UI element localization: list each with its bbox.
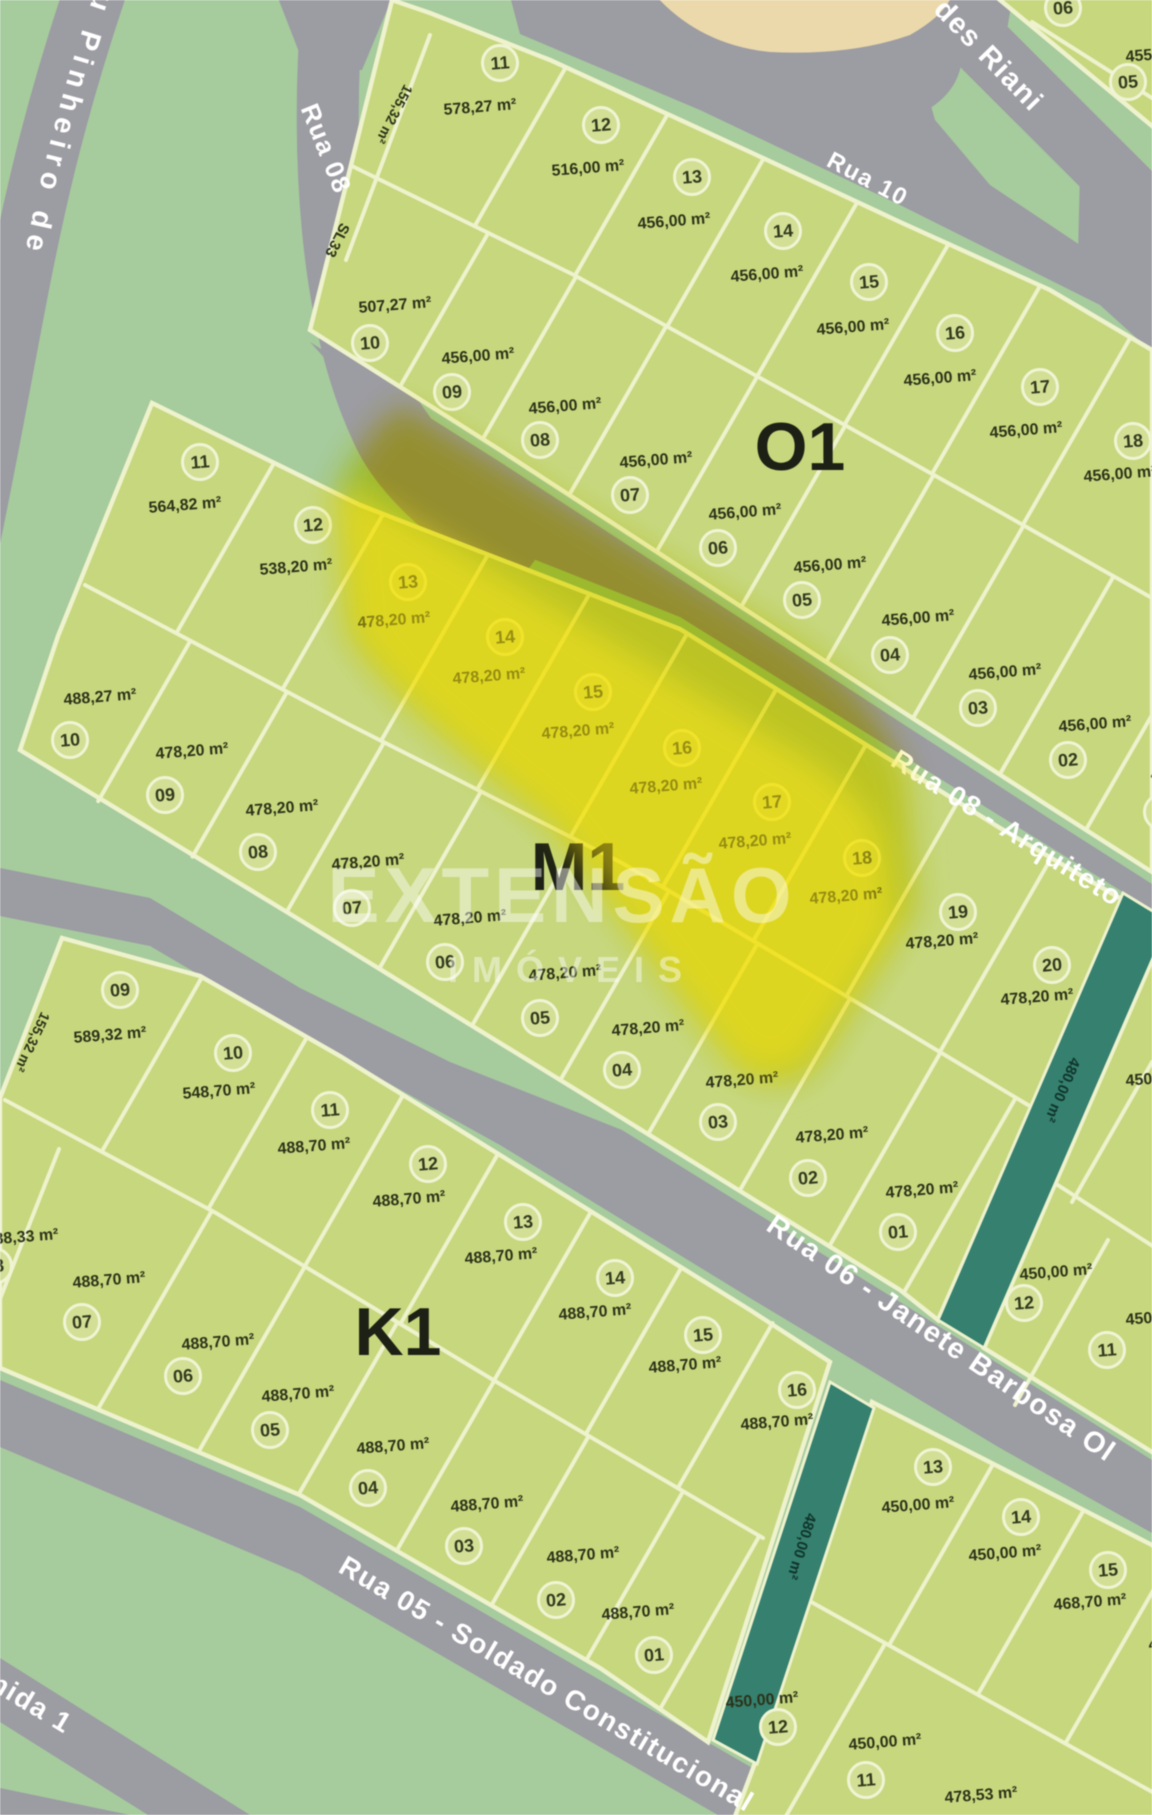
svg-text:11: 11 (856, 1769, 877, 1790)
svg-text:18: 18 (1122, 430, 1144, 452)
svg-text:13: 13 (681, 166, 703, 188)
svg-text:05: 05 (791, 589, 813, 611)
svg-text:09: 09 (109, 979, 131, 1001)
svg-text:12: 12 (767, 1716, 789, 1738)
svg-text:13: 13 (922, 1456, 944, 1478)
svg-text:12: 12 (302, 514, 324, 536)
svg-text:17: 17 (1029, 376, 1051, 398)
svg-text:07: 07 (71, 1311, 93, 1333)
svg-text:20: 20 (1041, 954, 1063, 976)
svg-text:02: 02 (1057, 749, 1079, 771)
svg-text:12: 12 (590, 114, 612, 136)
svg-text:12: 12 (417, 1153, 439, 1175)
svg-text:04: 04 (357, 1477, 379, 1499)
svg-text:13: 13 (512, 1211, 534, 1233)
svg-text:14: 14 (772, 220, 794, 242)
svg-text:05: 05 (1117, 71, 1139, 93)
svg-text:10: 10 (59, 729, 81, 751)
svg-text:08: 08 (529, 429, 551, 451)
svg-text:06: 06 (172, 1365, 194, 1387)
svg-text:15: 15 (692, 1324, 714, 1346)
svg-text:06: 06 (1052, 0, 1074, 19)
svg-text:14: 14 (604, 1267, 626, 1289)
svg-text:10: 10 (222, 1042, 244, 1064)
svg-text:01: 01 (643, 1644, 665, 1666)
svg-text:04: 04 (611, 1059, 633, 1081)
svg-text:03: 03 (453, 1535, 475, 1557)
svg-text:K1: K1 (355, 1294, 442, 1370)
svg-text:11: 11 (490, 52, 511, 73)
svg-text:12: 12 (1013, 1292, 1035, 1314)
svg-text:04: 04 (879, 644, 901, 666)
svg-text:15: 15 (1097, 1559, 1119, 1581)
svg-text:11: 11 (190, 451, 211, 472)
svg-text:01: 01 (887, 1221, 909, 1243)
svg-text:11: 11 (320, 1099, 341, 1120)
svg-text:IMÓVEIS: IMÓVEIS (448, 948, 696, 990)
svg-text:05: 05 (529, 1007, 551, 1029)
svg-text:08: 08 (247, 841, 269, 863)
svg-text:03: 03 (967, 697, 989, 719)
svg-text:09: 09 (441, 381, 463, 403)
svg-text:06: 06 (707, 537, 729, 559)
svg-text:07: 07 (619, 484, 641, 506)
svg-text:10: 10 (359, 332, 381, 354)
svg-text:14: 14 (1010, 1506, 1032, 1528)
svg-text:EXTENSÃO: EXTENSÃO (327, 851, 796, 939)
svg-text:02: 02 (797, 1167, 819, 1189)
svg-text:09: 09 (154, 784, 176, 806)
svg-text:03: 03 (707, 1111, 729, 1133)
svg-text:16: 16 (786, 1379, 808, 1401)
svg-text:02: 02 (545, 1589, 567, 1611)
svg-text:15: 15 (858, 271, 880, 293)
svg-text:11: 11 (1097, 1339, 1118, 1360)
svg-text:19: 19 (947, 901, 969, 923)
svg-text:16: 16 (944, 322, 966, 344)
svg-text:O1: O1 (755, 409, 846, 485)
svg-text:05: 05 (259, 1419, 281, 1441)
